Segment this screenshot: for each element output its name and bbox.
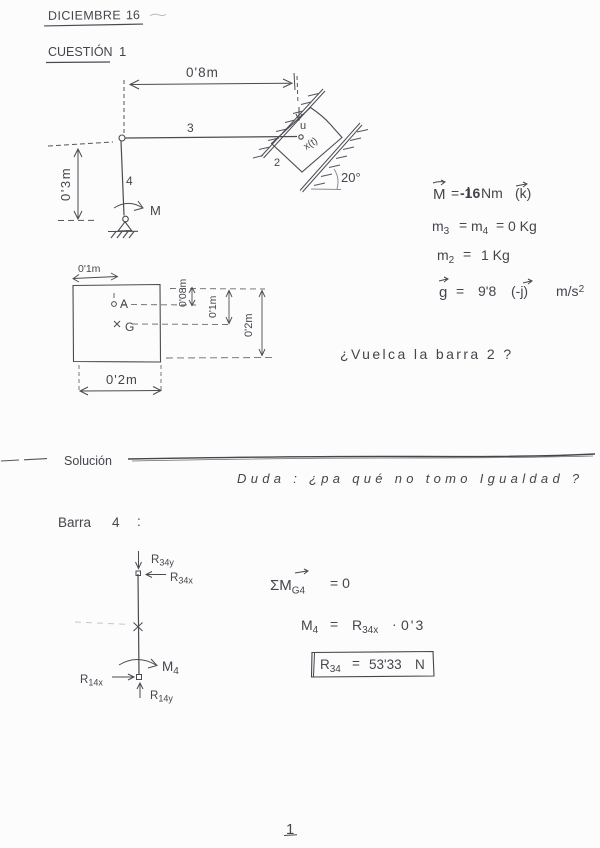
svg-text:DICIEMBRE: DICIEMBRE: [48, 8, 121, 23]
svg-text:=: =: [330, 616, 338, 632]
svg-text:0'8m: 0'8m: [186, 65, 219, 80]
svg-text:=: =: [459, 217, 467, 233]
svg-text:=: =: [451, 185, 459, 201]
svg-text:=: =: [352, 656, 360, 671]
svg-text:Solución: Solución: [64, 454, 112, 468]
svg-text:-16: -16: [460, 185, 480, 201]
svg-text:0'1m: 0'1m: [78, 263, 101, 275]
svg-text:Barra: Barra: [58, 515, 92, 530]
svg-text:1: 1: [119, 44, 126, 59]
svg-text:(-j): (-j): [511, 283, 528, 299]
svg-text:¿Vuelca la barra 2 ?: ¿Vuelca la barra 2 ?: [340, 346, 514, 362]
svg-text:0 Kg: 0 Kg: [508, 218, 537, 234]
svg-text:4: 4: [126, 174, 133, 188]
svg-text:20°: 20°: [341, 170, 361, 185]
svg-text::: :: [137, 514, 141, 529]
svg-text:53'33: 53'33: [369, 657, 402, 672]
svg-text:M: M: [150, 203, 161, 218]
svg-text:CUESTIÓN: CUESTIÓN: [48, 44, 113, 59]
svg-text:= 0: = 0: [330, 575, 350, 591]
svg-text:Nm: Nm: [481, 185, 503, 201]
svg-text:0'3m: 0'3m: [58, 167, 73, 201]
svg-text:=: =: [463, 246, 471, 262]
svg-text:N: N: [415, 657, 425, 672]
svg-text:·: ·: [392, 616, 397, 632]
svg-text:16: 16: [126, 8, 140, 22]
svg-text:A: A: [120, 297, 128, 311]
svg-text:1 Kg: 1 Kg: [481, 247, 510, 263]
svg-text:0'08m: 0'08m: [177, 278, 189, 307]
svg-text:=: =: [496, 217, 504, 233]
svg-text:0'1m: 0'1m: [207, 295, 219, 318]
svg-text:g: g: [439, 284, 447, 301]
svg-text:Duda : ¿pa qué no tomo Igualda: Duda : ¿pa qué no tomo Igualdad ?: [237, 471, 583, 486]
svg-text:0'3: 0'3: [401, 617, 425, 633]
svg-text:0'2m: 0'2m: [106, 372, 138, 387]
svg-text:u: u: [300, 120, 306, 132]
svg-text:G: G: [125, 320, 134, 334]
svg-text:9'8: 9'8: [478, 283, 496, 299]
svg-text:M: M: [433, 186, 446, 203]
svg-text:0'2m: 0'2m: [243, 314, 255, 338]
svg-text:=: =: [456, 283, 464, 299]
svg-text:2: 2: [274, 157, 280, 169]
svg-text:3: 3: [187, 121, 194, 135]
svg-text:(k): (k): [515, 185, 531, 201]
svg-text:4: 4: [112, 515, 120, 530]
